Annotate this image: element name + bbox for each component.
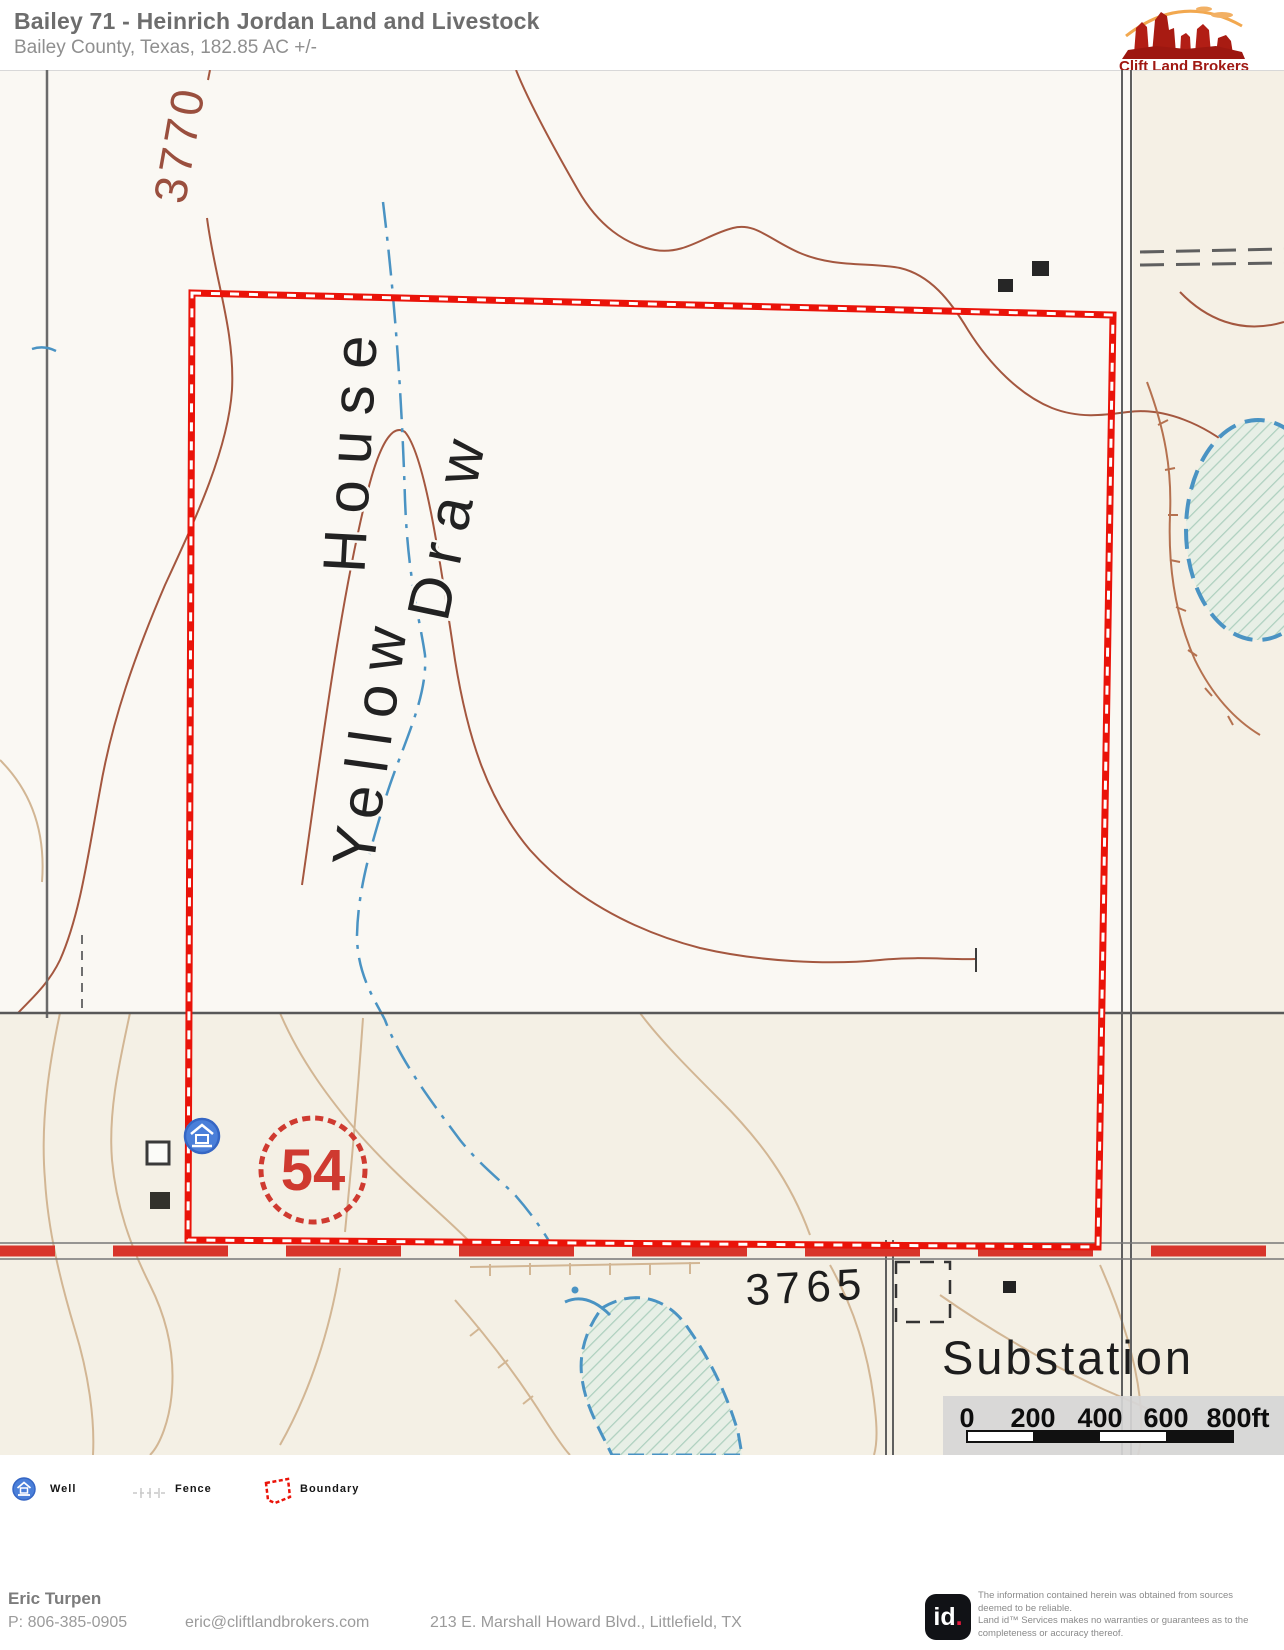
legend-boundary-symbol [262, 1476, 292, 1511]
draw-label-house: House [310, 318, 390, 575]
scale-tick-400: 400 [1077, 1403, 1122, 1433]
land-id-logo-dot: . [956, 1603, 963, 1632]
boundary-icon [262, 1476, 292, 1506]
brand-logo-graphic: Clift Land Brokers [1118, 2, 1250, 76]
topo-map[interactable]: 54 3770 House Yellow Draw 3765 Substatio… [0, 70, 1284, 1455]
logo-cloud [1196, 7, 1212, 12]
disclaimer: The information contained herein was obt… [978, 1590, 1280, 1640]
scale-bar: 0 200 400 600 800ft [943, 1396, 1284, 1455]
disclaimer-line: completeness or accuracy thereof. [978, 1628, 1280, 1641]
scale-tick-0: 0 [959, 1403, 974, 1433]
substation-label: Substation [942, 1331, 1194, 1384]
land-id-logo-text: id [933, 1603, 955, 1632]
legend-label-boundary: Boundary [300, 1483, 359, 1495]
spot-elevation-label: 3765 [744, 1260, 868, 1315]
scale-tick-800: 800ft [1206, 1403, 1269, 1433]
scale-tick-200: 200 [1010, 1403, 1055, 1433]
page-subtitle: Bailey County, Texas, 182.85 AC +/- [14, 37, 317, 59]
agent-address: 213 E. Marshall Howard Blvd., Littlefiel… [430, 1614, 742, 1632]
legend-label-fence: Fence [175, 1483, 212, 1495]
page-title: Bailey 71 - Heinrich Jordan Land and Liv… [14, 8, 540, 35]
agent-phone: P: 806-385-0905 [8, 1614, 127, 1632]
legend-well-marker [12, 1477, 36, 1501]
clift-land-brokers-logo: Clift Land Brokers [1118, 2, 1250, 76]
legend-label-well: Well [50, 1483, 76, 1495]
shield-label: 54 [281, 1138, 346, 1203]
agent-email[interactable]: eric@cliftlandbrokers.com [185, 1614, 369, 1632]
well-marker[interactable] [185, 1119, 219, 1153]
logo-cloud [1211, 12, 1233, 18]
disclaimer-line: deemed to be reliable. [978, 1603, 1280, 1616]
well-icon [12, 1477, 36, 1501]
disclaimer-line: The information contained herein was obt… [978, 1590, 1280, 1603]
legend-fence-symbol [133, 1486, 167, 1504]
scale-tick-600: 600 [1143, 1403, 1188, 1433]
agent-name: Eric Turpen [8, 1589, 101, 1609]
land-id-logo: id. [925, 1594, 971, 1640]
fence-icon [133, 1487, 167, 1499]
disclaimer-line: Land id™ Services makes no warranties or… [978, 1615, 1280, 1628]
